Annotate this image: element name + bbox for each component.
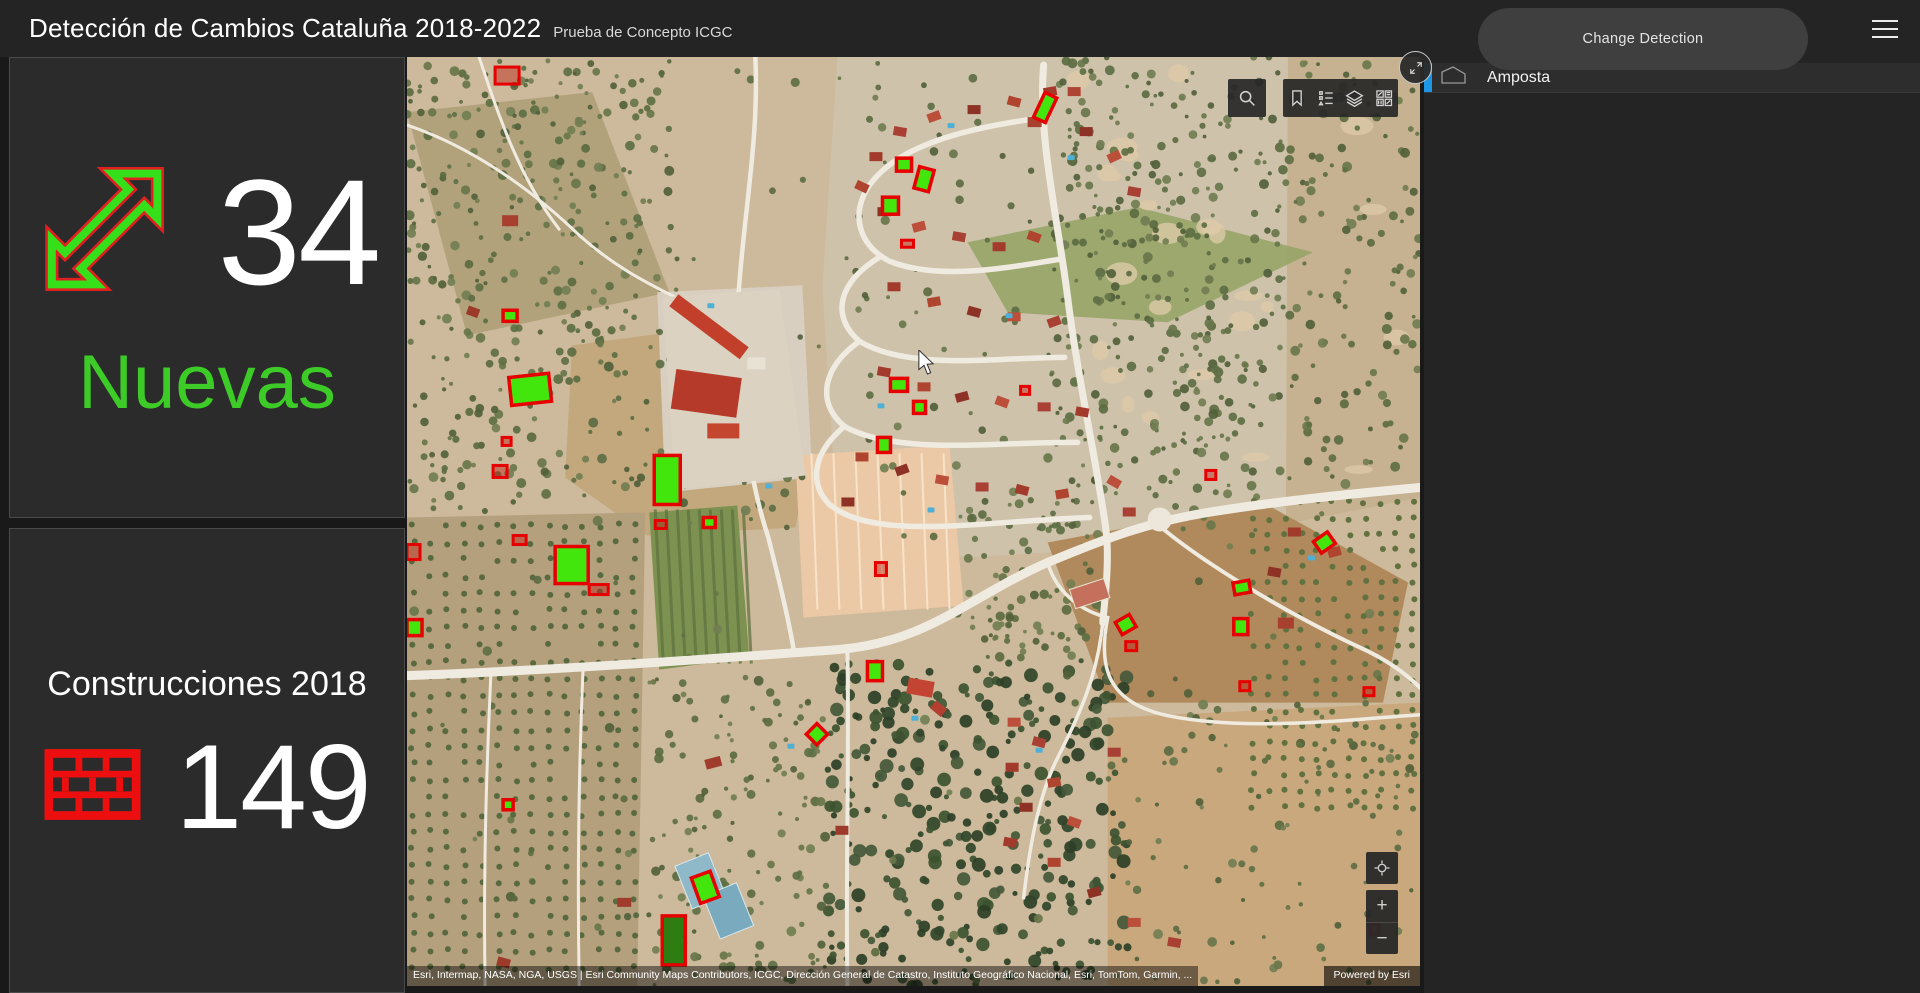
powered-by-esri: Powered by Esri [1324, 966, 1420, 986]
basemap-gallery-icon[interactable] [1370, 79, 1398, 117]
legend-list-icon[interactable] [1312, 79, 1340, 117]
nuevas-value: 34 [218, 172, 379, 292]
locate-button[interactable] [1366, 852, 1398, 884]
map-attribution-bar: Esri, Intermap, NASA, NGA, USGS | Esri C… [407, 966, 1420, 986]
hamburger-menu-icon[interactable] [1872, 20, 1900, 40]
brick-wall-icon [44, 748, 141, 826]
polygon-outline-icon [1439, 63, 1469, 92]
zoom-controls: + − [1366, 890, 1398, 954]
map-toolbar-group [1283, 79, 1398, 117]
zoom-in-button[interactable]: + [1366, 890, 1398, 923]
change-detection-button[interactable]: Change Detection [1478, 8, 1808, 70]
stat-panel-construcciones: Construcciones 2018 [9, 528, 405, 993]
page-subtitle: Prueba de Concepto ICGC [553, 24, 732, 41]
map-toolbar-search-group [1228, 79, 1266, 117]
construcciones-value: 149 [175, 739, 369, 835]
expand-icon[interactable] [1399, 51, 1432, 84]
search-icon[interactable] [1233, 79, 1261, 117]
bookmark-icon[interactable] [1283, 79, 1311, 117]
legend-item-label: Amposta [1487, 69, 1550, 87]
arrow-up-right-icon [36, 163, 168, 300]
layers-icon[interactable] [1341, 79, 1369, 117]
map-attribution: Esri, Intermap, NASA, NGA, USGS | Esri C… [407, 966, 1198, 986]
stat-panel-nuevas: 34 Nuevas [9, 57, 405, 518]
map-view[interactable]: + − Esri, Intermap, NASA, NGA, USGS | Es… [407, 57, 1420, 986]
mouse-cursor-icon [915, 350, 937, 381]
construcciones-label: Construcciones 2018 [10, 664, 404, 705]
page-title: Detección de Cambios Cataluña 2018-2022 [29, 0, 541, 57]
nuevas-label: Nuevas [10, 345, 404, 421]
legend-panel: Amposta [1424, 57, 1920, 993]
map-canvas[interactable] [407, 57, 1420, 986]
dashboard-app: Detección de Cambios Cataluña 2018-2022 … [0, 0, 1920, 993]
zoom-out-button[interactable]: − [1366, 923, 1398, 955]
